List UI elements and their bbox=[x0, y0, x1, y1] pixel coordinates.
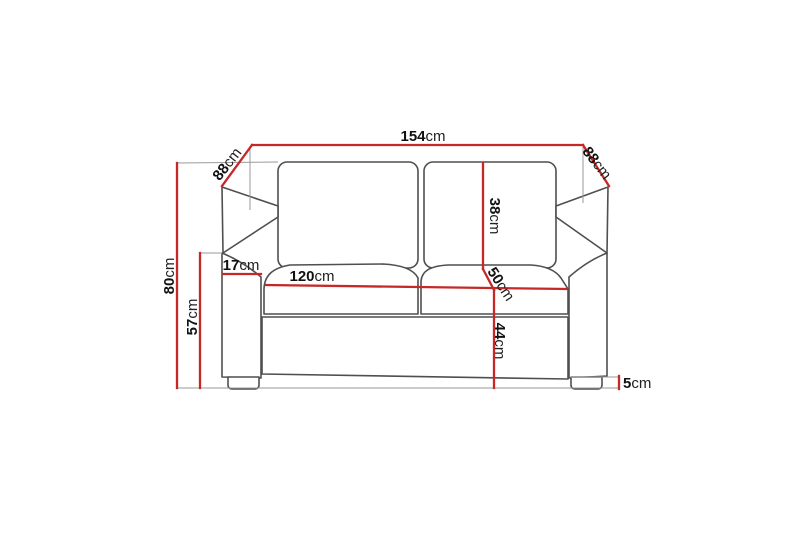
dim-label-overall-height: 80cm bbox=[161, 258, 178, 295]
sofa-leg-right bbox=[571, 377, 602, 389]
sofa-base bbox=[262, 317, 568, 379]
dim-label-overall-width: 154cm bbox=[400, 128, 445, 145]
sofa-back-cushion-left bbox=[278, 162, 418, 268]
dim-label-armrest-width: 17cm bbox=[223, 257, 260, 274]
dim-label-leg-height: 5cm bbox=[623, 375, 651, 392]
sofa-dimension-diagram: 154cm 88cm 88cm 80cm 57cm 17cm 120cm 38c… bbox=[0, 0, 800, 533]
dim-label-seat-height: 44cm bbox=[491, 323, 508, 360]
sofa-seat-cushion-left bbox=[264, 264, 418, 314]
sofa-diagram-svg: 154cm 88cm 88cm 80cm 57cm 17cm 120cm 38c… bbox=[0, 0, 800, 533]
dim-label-depth-left: 88cm bbox=[209, 145, 245, 184]
dim-label-seat-width: 120cm bbox=[289, 268, 334, 285]
dim-label-depth-right: 88cm bbox=[579, 144, 615, 183]
sofa-armrest-right-top bbox=[556, 187, 608, 253]
sofa-leg-left bbox=[228, 377, 259, 389]
sofa-armrest-right-front bbox=[569, 253, 607, 378]
dim-label-back-cushion-height: 38cm bbox=[486, 198, 503, 235]
sofa-outline bbox=[222, 162, 608, 389]
dim-label-armrest-height: 57cm bbox=[184, 299, 201, 336]
